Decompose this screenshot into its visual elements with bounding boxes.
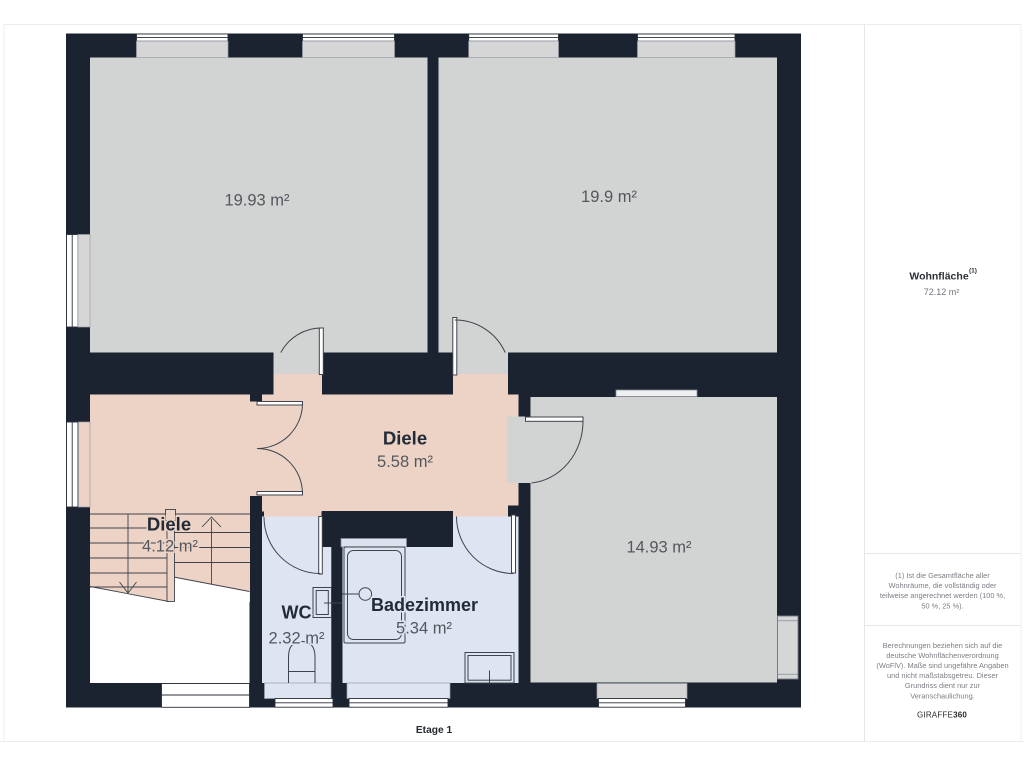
- svg-text:Etage 1: Etage 1: [416, 725, 453, 736]
- svg-text:GIRAFFE360: GIRAFFE360: [917, 711, 967, 720]
- svg-text:19.9 m²: 19.9 m²: [581, 188, 637, 206]
- svg-text:19.93 m²: 19.93 m²: [224, 192, 290, 210]
- svg-text:und nicht maßstabsgetreu. Dies: und nicht maßstabsgetreu. Dieser: [887, 671, 998, 680]
- svg-text:(1): (1): [969, 268, 977, 275]
- svg-text:Diele: Diele: [147, 514, 191, 535]
- svg-text:Badezimmer: Badezimmer: [371, 595, 478, 615]
- svg-text:14.93 m²: 14.93 m²: [626, 539, 692, 557]
- svg-text:deutsche Wohnflächenverordnung: deutsche Wohnflächenverordnung: [886, 651, 998, 660]
- svg-text:teilweise angerechnet werden (: teilweise angerechnet werden (100 %,: [880, 591, 1005, 600]
- svg-text:5.58 m²: 5.58 m²: [377, 453, 433, 471]
- svg-text:50 %, 25 %).: 50 %, 25 %).: [921, 601, 963, 610]
- svg-text:Veranschaulichung.: Veranschaulichung.: [910, 691, 975, 700]
- svg-text:72.12 m²: 72.12 m²: [924, 287, 960, 297]
- svg-text:4.12 m²: 4.12 m²: [142, 538, 198, 556]
- svg-text:Berechnungen beziehen sich auf: Berechnungen beziehen sich auf die: [883, 641, 1003, 650]
- svg-text:Wohnräume, die vollständig ode: Wohnräume, die vollständig oder: [889, 581, 997, 590]
- svg-text:WC: WC: [282, 603, 312, 623]
- svg-text:(1) Ist die Gesamtfläche aller: (1) Ist die Gesamtfläche aller: [895, 571, 990, 580]
- svg-text:5.34 m²: 5.34 m²: [396, 620, 452, 638]
- svg-text:Grundriss dient nur zur: Grundriss dient nur zur: [905, 681, 981, 690]
- svg-text:Wohnfläche: Wohnfläche: [909, 271, 968, 283]
- svg-text:(WoFlV). Maße sind ungefähre A: (WoFlV). Maße sind ungefähre Angaben: [876, 661, 1008, 670]
- svg-text:2.32 m²: 2.32 m²: [269, 630, 325, 648]
- svg-text:Diele: Diele: [383, 428, 427, 449]
